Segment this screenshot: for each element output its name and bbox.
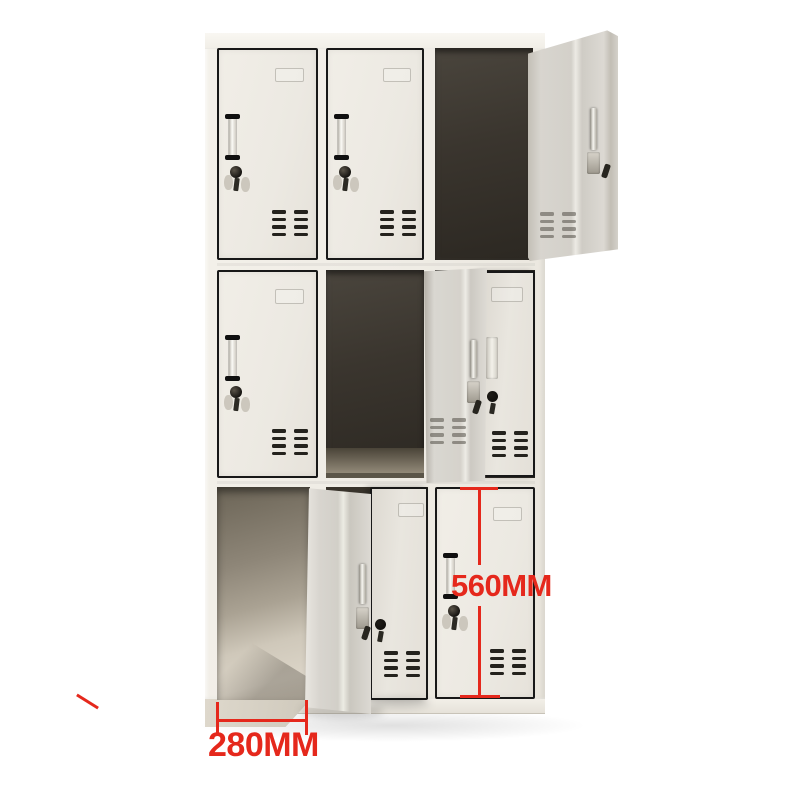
dimension-line-vertical-upper [478, 489, 481, 565]
keyhole-icon [487, 391, 498, 402]
stray-red-mark [76, 694, 99, 710]
keyhole-lock [224, 166, 252, 204]
dimension-line-vertical-lower [478, 606, 481, 697]
row-divider [217, 263, 535, 266]
key-icon [601, 163, 611, 178]
locker-door-top-left [217, 48, 318, 260]
open-door-bottom-left [305, 486, 371, 714]
ventilation-slots [380, 210, 416, 236]
label-card-slot [493, 507, 522, 521]
open-compartment-interior-middle-center [326, 270, 424, 478]
open-compartment-interior-top-right [435, 48, 533, 260]
keyhole-lock [224, 386, 252, 424]
row-divider [217, 481, 535, 484]
key-icon [489, 403, 496, 415]
locker-door-top-middle [326, 48, 424, 260]
door-handle [225, 335, 240, 381]
keyhole-lock [442, 605, 470, 643]
handle-recess [486, 337, 498, 379]
locker-door-middle-left [217, 270, 318, 478]
door-handle [334, 114, 349, 160]
lock-plate [587, 152, 600, 174]
label-card-slot [398, 503, 424, 517]
compartment-front-lip [326, 473, 424, 478]
ajar-door-middle-right [481, 271, 535, 477]
door-handle [470, 340, 477, 378]
floor-shadow [217, 602, 310, 700]
ventilation-slots [540, 212, 576, 238]
ventilation-slots [272, 210, 308, 236]
open-compartment-interior-bottom-left [217, 487, 310, 700]
label-card-slot [491, 287, 523, 302]
door-handle [359, 564, 366, 604]
label-card-slot [275, 289, 304, 303]
label-card-slot [275, 68, 304, 82]
label-card-slot [383, 68, 411, 82]
ventilation-slots [490, 649, 526, 675]
dimension-tick-bottom [460, 695, 500, 698]
door-handle [225, 114, 240, 160]
height-dimension-label: 560MM [451, 570, 552, 601]
ventilation-slots [430, 418, 466, 444]
key-icon [377, 631, 384, 643]
open-door-middle-center [424, 268, 487, 483]
ajar-door-bottom-middle [370, 487, 428, 700]
product-photo: 560MM 280MM [0, 0, 800, 800]
dimension-line-horizontal [217, 719, 308, 722]
compartment-floor [326, 448, 424, 474]
open-door-top-right [528, 28, 618, 261]
door-handle [590, 108, 597, 150]
ventilation-slots [492, 431, 528, 457]
ventilation-slots [384, 651, 420, 677]
door-shadow [368, 698, 430, 708]
cabinet-top-edge [205, 33, 545, 49]
ventilation-slots [272, 429, 308, 455]
keyhole-lock [333, 166, 361, 204]
width-dimension-label: 280MM [208, 728, 319, 762]
keyhole-icon [375, 619, 386, 630]
